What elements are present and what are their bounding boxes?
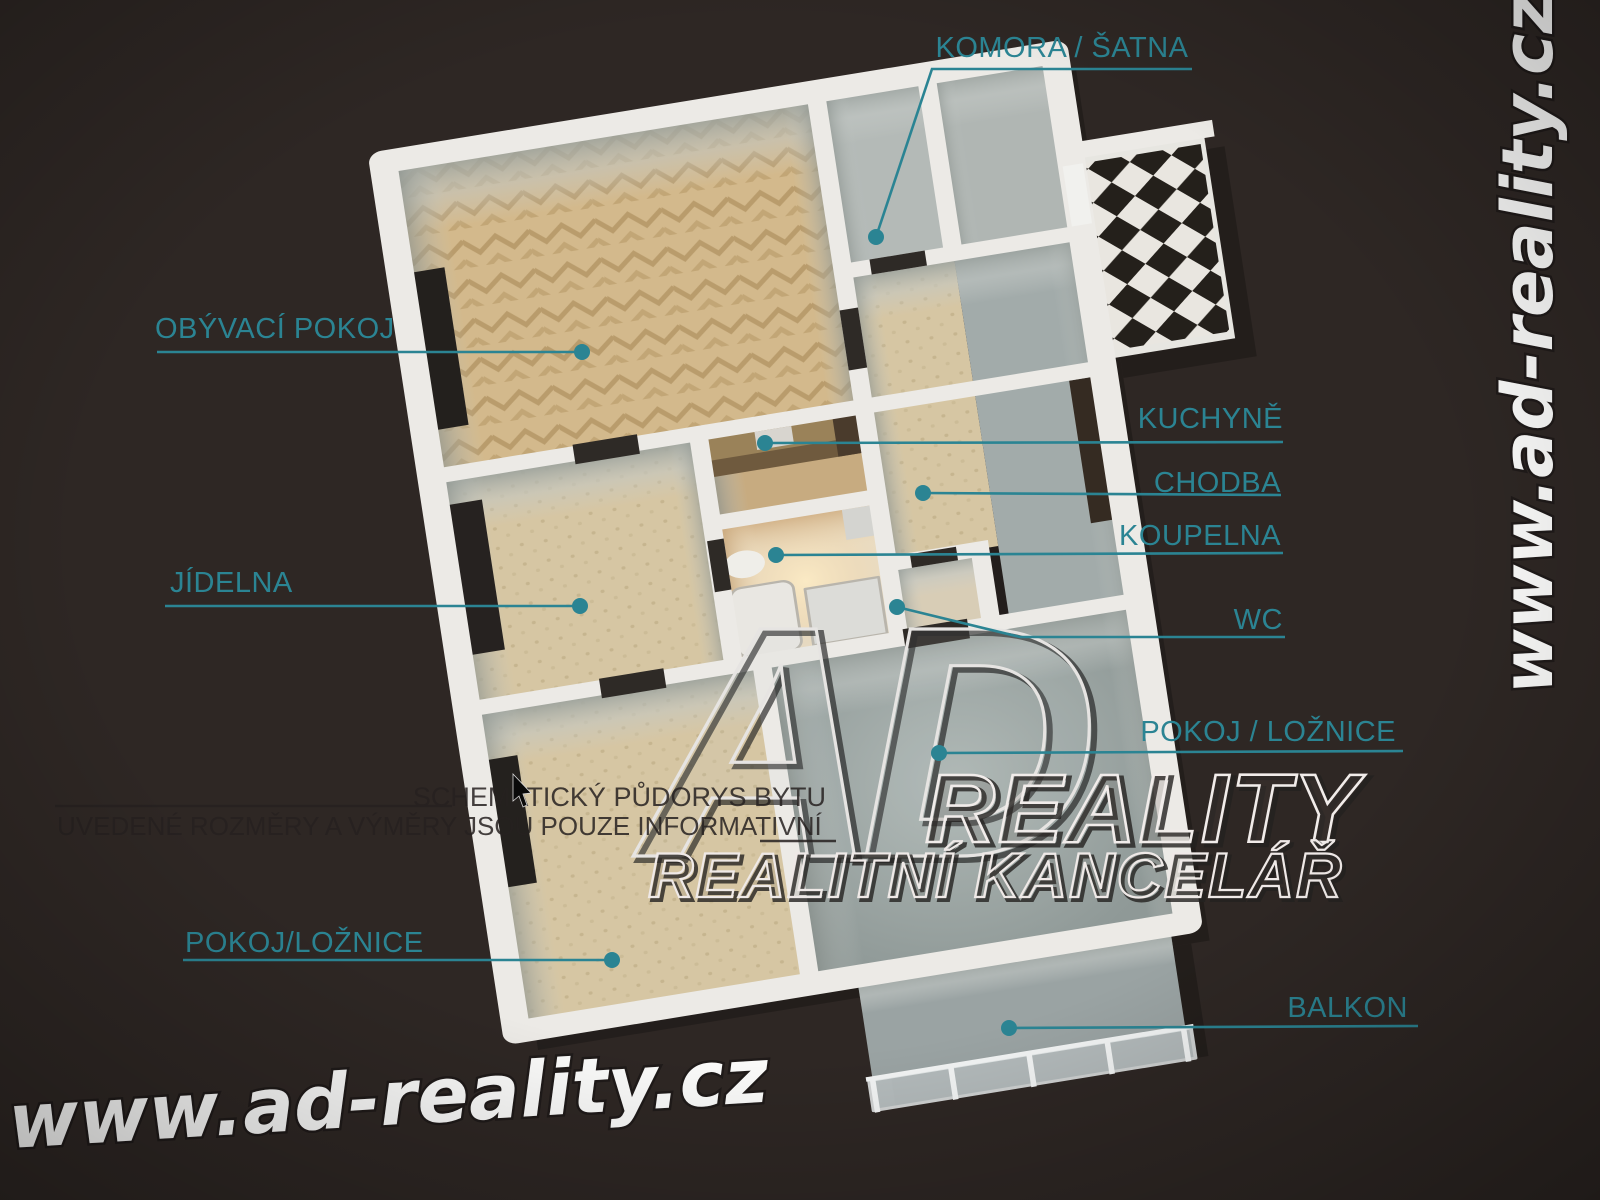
disclaimer-line2: UVEDENÉ ROZMĚRY A VÝMĚRY JSOU POUZE INFO… (57, 811, 823, 841)
floor-plan-image: AD AD REALITY REALITY REALITNÍ KANCELÁŘ … (0, 0, 1600, 1200)
label-text-obyvaci-pokoj: OBÝVACÍ POKOJ (155, 312, 395, 345)
label-dot-marker (768, 547, 784, 563)
label-text-komora-satna: KOMORA / ŠATNA (935, 30, 1188, 64)
label-text-kuchyne: KUCHYNĚ (1138, 402, 1283, 435)
label-leader-line (765, 442, 1283, 443)
label-dot-marker (574, 344, 590, 360)
label-dot-marker (889, 599, 905, 615)
label-dot-marker (572, 598, 588, 614)
disclaimer-line1: SCHEMATICKÝ PŮDORYS BYTU (413, 780, 826, 812)
label-text-jidelna: JÍDELNA (170, 566, 293, 599)
logo-tagline: REALITNÍ KANCELÁŘ (648, 840, 1343, 911)
label-text-chodba: CHODBA (1154, 467, 1281, 499)
watermark-right-vertical: www.ad-reality.cz (1487, 0, 1569, 694)
label-text-koupelna: KOUPELNA (1119, 520, 1281, 552)
label-text-balkon: BALKON (1287, 992, 1408, 1024)
label-dot-marker (1001, 1020, 1017, 1036)
label-text-pokoj-loznice-left: POKOJ/LOŽNICE (185, 926, 424, 959)
label-dot-marker (931, 745, 947, 761)
label-dot-marker (757, 435, 773, 451)
label-text-wc: WC (1234, 604, 1283, 636)
label-dot-marker (915, 485, 931, 501)
label-text-pokoj-loznice-right: POKOJ / LOŽNICE (1140, 715, 1396, 748)
label-dot-marker (868, 229, 884, 245)
label-dot-marker (604, 952, 620, 968)
